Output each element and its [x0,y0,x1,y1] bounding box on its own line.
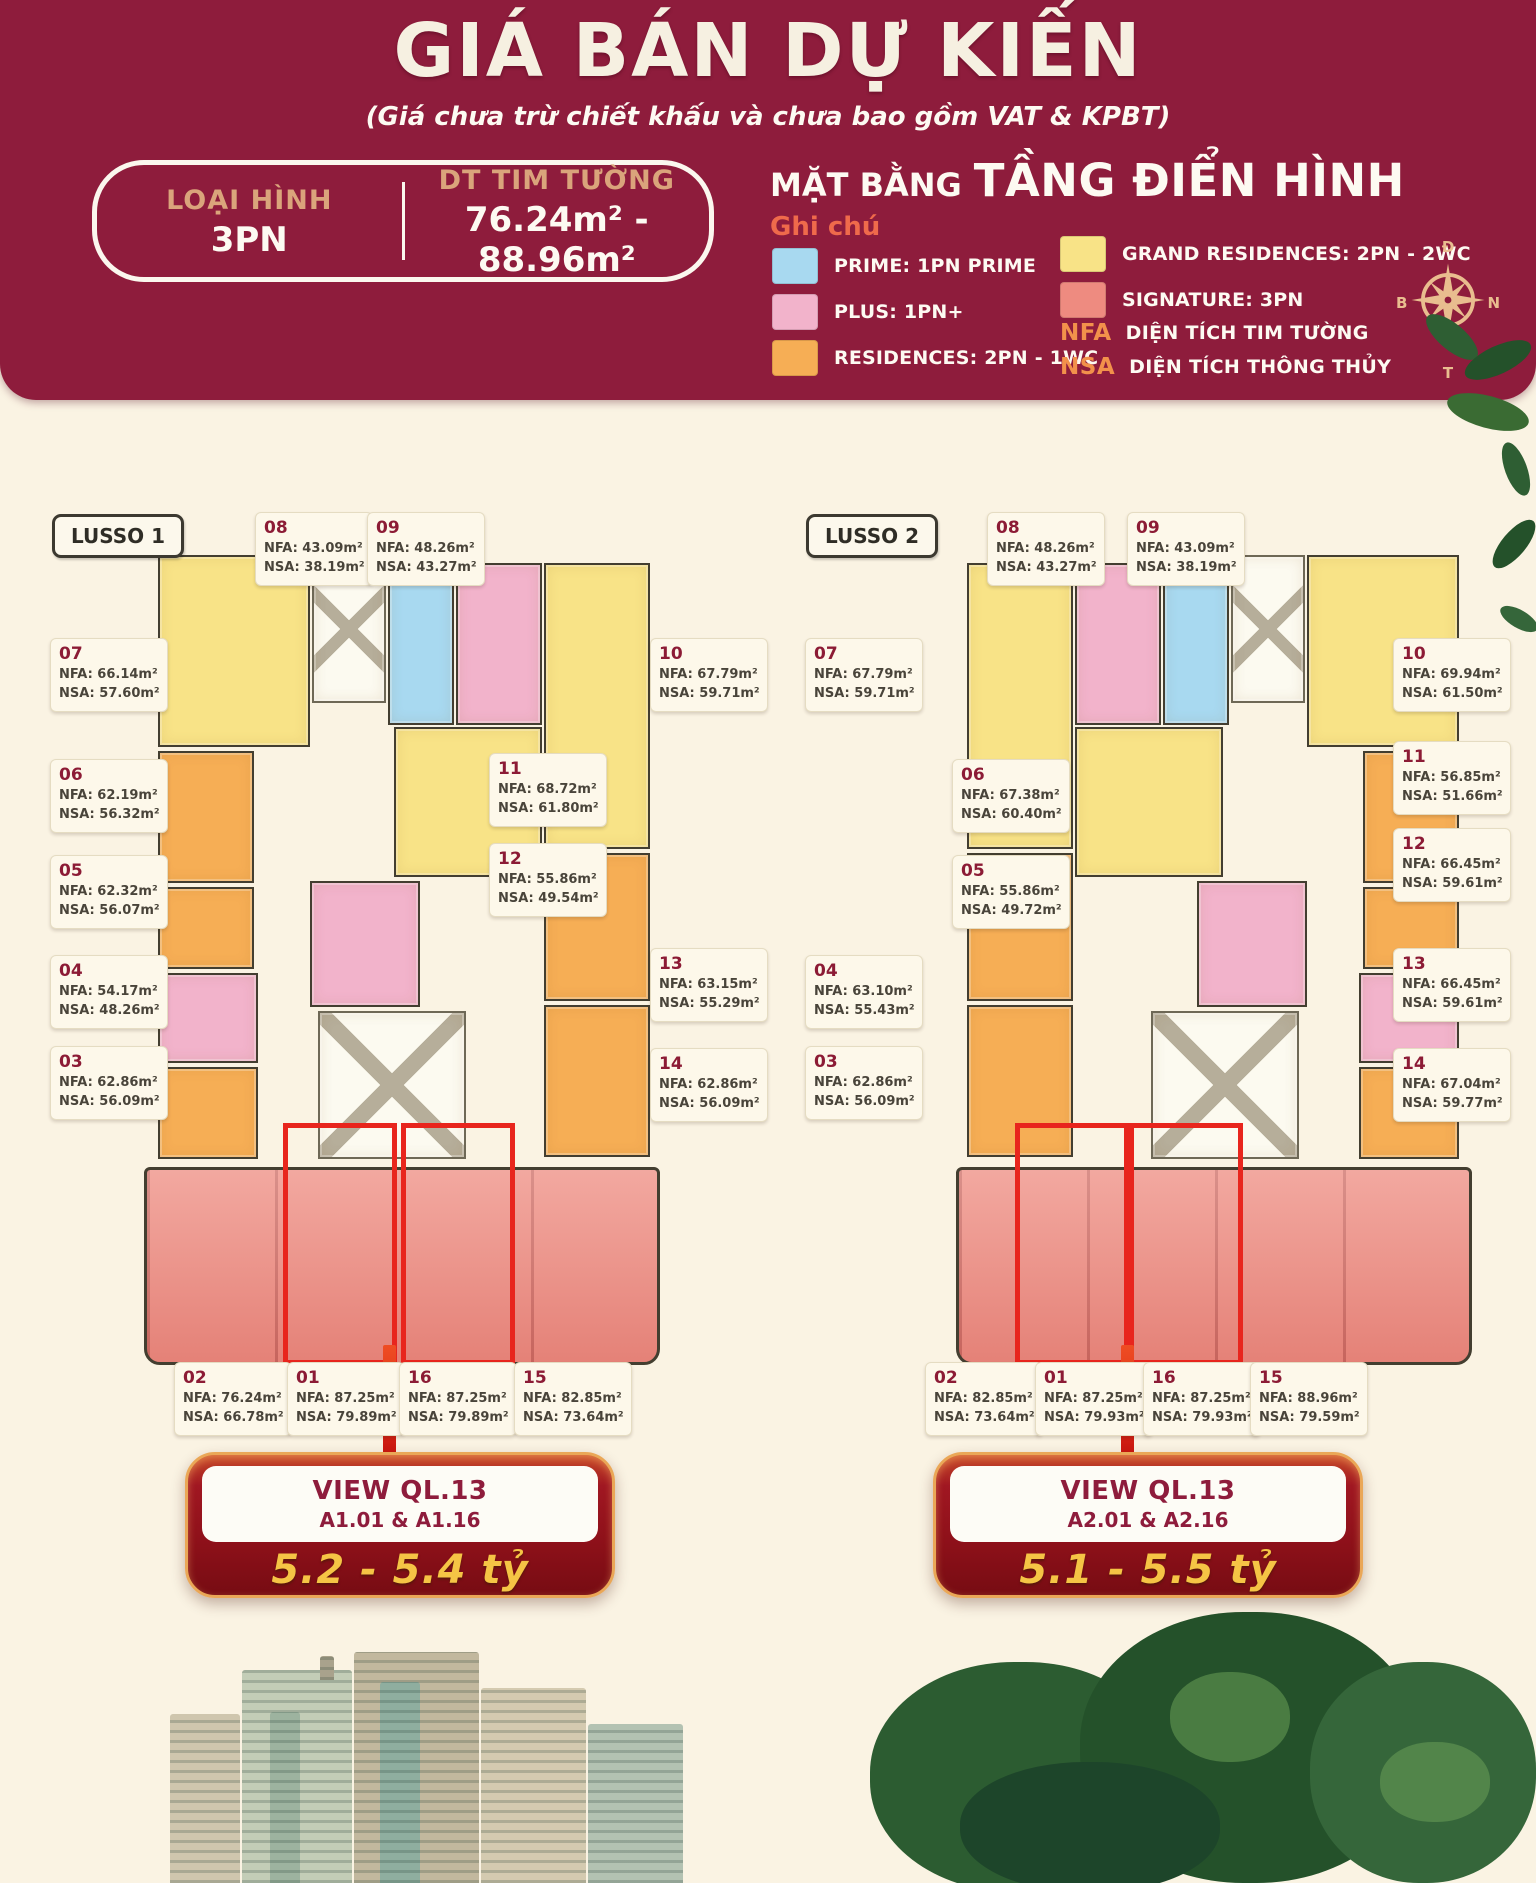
legend-label: RESIDENCES: 2PN - 1WC [834,347,1098,369]
building-tower [170,1714,240,1883]
tree-photo [840,1612,1536,1883]
highlight-box-unit [1129,1123,1243,1365]
unit-nsa: NSA: 60.40m² [961,806,1061,825]
callout-units-label: A2.01 & A2.16 [1067,1508,1228,1532]
unit-number: 12 [498,849,598,869]
unit-nsa: NSA: 73.64m² [934,1409,1034,1428]
unit-nfa: NFA: 66.14m² [59,666,159,685]
unit-nsa: NSA: 56.32m² [59,806,159,825]
compass-letter-top: Đ [1442,238,1455,256]
unit-number: 06 [961,765,1061,785]
unit-nsa: NSA: 43.27m² [996,559,1096,578]
area-column: DT TIM TƯỜNG 76.24m² - 88.96m² [405,163,710,280]
unit-nsa: NSA: 55.29m² [659,995,759,1014]
legend-swatch-grand [1060,236,1106,272]
plan-zone-plus [1197,881,1307,1007]
nfa-abbreviation-row: NFA DIỆN TÍCH TIM TƯỜNG [1060,320,1369,346]
unit-nfa: NFA: 87.25m² [296,1390,396,1409]
unit-nfa: NFA: 88.96m² [1259,1390,1359,1409]
unit-nfa: NFA: 54.17m² [59,983,159,1002]
unit-nfa: NFA: 48.26m² [376,540,476,559]
unit-nsa: NSA: 57.60m² [59,685,159,704]
unit-card: 02NFA: 76.24m²NSA: 66.78m² [174,1362,292,1436]
unit-nfa: NFA: 82.85m² [934,1390,1034,1409]
callout-units-label: A1.01 & A1.16 [319,1508,480,1532]
unit-card: 04NFA: 63.10m²NSA: 55.43m² [805,955,923,1029]
unit-type-info-box: LOẠI HÌNH 3PN DT TIM TƯỜNG 76.24m² - 88.… [92,160,714,282]
unit-nsa: NSA: 48.26m² [59,1002,159,1021]
unit-card: 11NFA: 56.85m²NSA: 51.66m² [1393,741,1511,815]
unit-nfa: NFA: 62.19m² [59,787,159,806]
building-render-photo [170,1652,730,1883]
unit-card: 09NFA: 43.09m²NSA: 38.19m² [1127,512,1245,586]
nsa-key: NSA [1060,354,1115,380]
tree-foliage-highlight [1170,1672,1290,1762]
leaf [1496,439,1536,499]
unit-number: 07 [59,644,159,664]
poster: GIÁ BÁN DỰ KIẾN (Giá chưa trừ chiết khấu… [0,0,1536,1883]
unit-nfa: NFA: 62.86m² [814,1074,914,1093]
unit-nfa: NFA: 67.38m² [961,787,1061,806]
unit-nsa: NSA: 73.64m² [523,1409,623,1428]
unit-number: 15 [1259,1368,1359,1388]
plan-zone-grand [1075,727,1223,877]
unit-nsa: NSA: 56.07m² [59,902,159,921]
highlight-box-unit [401,1123,515,1365]
unit-number: 16 [408,1368,508,1388]
compass-letter-left: B [1396,294,1407,312]
floor-plan-lusso-2 [962,555,1467,1367]
unit-card: 05NFA: 62.32m²NSA: 56.07m² [50,855,168,929]
callout-view-label: VIEW QL.13 [312,1476,487,1506]
plan-zone-plus [456,563,542,725]
unit-nfa: NFA: 66.45m² [1402,976,1502,995]
legend-label: SIGNATURE: 3PN [1122,289,1304,311]
unit-card: 06NFA: 67.38m²NSA: 60.40m² [952,759,1070,833]
legend-swatch-prime [772,248,818,284]
unit-card: 01NFA: 87.25m²NSA: 79.89m² [287,1362,405,1436]
unit-nsa: NSA: 49.72m² [961,902,1061,921]
unit-nfa: NFA: 66.45m² [1402,856,1502,875]
plan-zone-plus [1075,563,1161,725]
foliage-top-right [1390,318,1536,668]
legend-label: PLUS: 1PN+ [834,301,964,323]
building-glass [270,1712,300,1883]
unit-card: 16NFA: 87.25m²NSA: 79.93m² [1143,1362,1261,1436]
unit-nsa: NSA: 79.89m² [408,1409,508,1428]
unit-card: 05NFA: 55.86m²NSA: 49.72m² [952,855,1070,929]
unit-number: 11 [1402,747,1502,767]
unit-nsa: NSA: 38.19m² [264,559,364,578]
unit-nfa: NFA: 43.09m² [1136,540,1236,559]
unit-number: 03 [59,1052,159,1072]
type-value: 3PN [97,220,402,260]
legend-swatch-residences [772,340,818,376]
unit-number: 01 [296,1368,396,1388]
unit-nfa: NFA: 82.85m² [523,1390,623,1409]
legend-label: PRIME: 1PN PRIME [834,255,1036,277]
poster-title: GIÁ BÁN DỰ KIẾN [0,8,1536,94]
tower-label-lusso-2: LUSSO 2 [806,514,938,558]
unit-nsa: NSA: 79.89m² [296,1409,396,1428]
unit-nfa: NFA: 67.04m² [1402,1076,1502,1095]
legend-title: Ghi chú [770,212,880,242]
tree-foliage-highlight [1380,1742,1490,1822]
plan-zone-residences [158,887,254,969]
unit-number: 08 [996,518,1096,538]
unit-card: 14NFA: 62.86m²NSA: 56.09m² [650,1048,768,1122]
unit-number: 05 [961,861,1061,881]
unit-nsa: NSA: 56.09m² [59,1093,159,1112]
highlight-box-unit [1015,1123,1129,1365]
unit-card: 07NFA: 66.14m²NSA: 57.60m² [50,638,168,712]
legend-swatch-plus [772,294,818,330]
type-label: LOẠI HÌNH [97,185,402,216]
unit-card: 07NFA: 67.79m²NSA: 59.71m² [805,638,923,712]
callout-view-box: VIEW QL.13 A1.01 & A1.16 [202,1466,598,1542]
price-callout-lusso-2: VIEW QL.13 A2.01 & A2.16 5.1 - 5.5 tỷ [933,1452,1363,1598]
legend-swatch-signature [1060,282,1106,318]
unit-number: 16 [1152,1368,1252,1388]
unit-card: 14NFA: 67.04m²NSA: 59.77m² [1393,1048,1511,1122]
nfa-key: NFA [1060,320,1112,346]
nsa-label: DIỆN TÍCH THÔNG THỦY [1129,356,1391,378]
compass-letter-right: N [1487,294,1500,312]
unit-nsa: NSA: 49.54m² [498,890,598,909]
unit-number: 08 [264,518,364,538]
unit-card: 03NFA: 62.86m²NSA: 56.09m² [50,1046,168,1120]
plan-zone-prime [1163,563,1229,725]
nfa-label: DIỆN TÍCH TIM TƯỜNG [1126,322,1369,344]
unit-nsa: NSA: 59.71m² [659,685,759,704]
unit-number: 02 [934,1368,1034,1388]
building-tower [588,1724,683,1883]
plan-heading-main: TẦNG ĐIỂN HÌNH [974,154,1405,207]
unit-number: 07 [814,644,914,664]
legend-item: PLUS: 1PN+ [772,294,1098,330]
unit-number: 01 [1044,1368,1144,1388]
unit-nfa: NFA: 68.72m² [498,781,598,800]
unit-card: 15NFA: 88.96m²NSA: 79.59m² [1250,1362,1368,1436]
plan-zone-plus [310,881,420,1007]
plan-zone-residences [158,751,254,883]
building-glass [380,1682,420,1883]
unit-nsa: NSA: 43.27m² [376,559,476,578]
callout-price: 5.1 - 5.5 tỷ [936,1545,1360,1595]
unit-nsa: NSA: 59.61m² [1402,995,1502,1014]
plan-heading-prefix: MẶT BẰNG [770,166,962,204]
unit-number: 04 [59,961,159,981]
unit-nsa: NSA: 59.77m² [1402,1095,1502,1114]
unit-nfa: NFA: 43.09m² [264,540,364,559]
unit-nfa: NFA: 67.79m² [659,666,759,685]
callout-view-box: VIEW QL.13 A2.01 & A2.16 [950,1466,1346,1542]
unit-number: 03 [814,1052,914,1072]
unit-number: 04 [814,961,914,981]
unit-nfa: NFA: 87.25m² [1152,1390,1252,1409]
plan-zone-residences [544,1005,650,1157]
legend-item: PRIME: 1PN PRIME [772,248,1098,284]
unit-card: 09NFA: 48.26m²NSA: 43.27m² [367,512,485,586]
unit-nfa: NFA: 67.79m² [814,666,914,685]
unit-number: 06 [59,765,159,785]
unit-nsa: NSA: 59.61m² [1402,875,1502,894]
unit-number: 02 [183,1368,283,1388]
unit-number: 05 [59,861,159,881]
unit-nfa: NFA: 48.26m² [996,540,1096,559]
callout-view-label: VIEW QL.13 [1060,1476,1235,1506]
price-callout-lusso-1: VIEW QL.13 A1.01 & A1.16 5.2 - 5.4 tỷ [185,1452,615,1598]
unit-number: 12 [1402,834,1502,854]
unit-nsa: NSA: 61.80m² [498,800,598,819]
unit-number: 13 [1402,954,1502,974]
unit-nfa: NFA: 87.25m² [408,1390,508,1409]
unit-card: 12NFA: 66.45m²NSA: 59.61m² [1393,828,1511,902]
unit-nfa: NFA: 62.86m² [659,1076,759,1095]
nsa-abbreviation-row: NSA DIỆN TÍCH THÔNG THỦY [1060,354,1391,380]
unit-nfa: NFA: 63.10m² [814,983,914,1002]
plan-zone-prime [388,563,454,725]
unit-nfa: NFA: 62.86m² [59,1074,159,1093]
unit-card: 03NFA: 62.86m²NSA: 56.09m² [805,1046,923,1120]
unit-number: 10 [659,644,759,664]
unit-nsa: NSA: 55.43m² [814,1002,914,1021]
unit-nfa: NFA: 55.86m² [961,883,1061,902]
unit-nfa: NFA: 76.24m² [183,1390,283,1409]
unit-card: 08NFA: 48.26m²NSA: 43.27m² [987,512,1105,586]
leaf [1496,601,1536,638]
unit-nfa: NFA: 55.86m² [498,871,598,890]
floor-plan-lusso-1 [150,555,655,1367]
unit-card: 01NFA: 87.25m²NSA: 79.93m² [1035,1362,1153,1436]
unit-number: 11 [498,759,598,779]
unit-card: 16NFA: 87.25m²NSA: 79.89m² [399,1362,517,1436]
unit-card: 13NFA: 66.45m²NSA: 59.61m² [1393,948,1511,1022]
unit-nsa: NSA: 79.59m² [1259,1409,1359,1428]
unit-card: 08NFA: 43.09m²NSA: 38.19m² [255,512,373,586]
area-value: 76.24m² - 88.96m² [405,200,710,280]
legend-item: RESIDENCES: 2PN - 1WC [772,340,1098,376]
unit-nfa: NFA: 56.85m² [1402,769,1502,788]
unit-nsa: NSA: 61.50m² [1402,685,1502,704]
unit-nsa: NSA: 56.09m² [659,1095,759,1114]
unit-card: 06NFA: 62.19m²NSA: 56.32m² [50,759,168,833]
leaf [1443,386,1532,439]
type-column: LOẠI HÌNH 3PN [97,183,402,260]
unit-number: 09 [376,518,476,538]
unit-card: 15NFA: 82.85m²NSA: 73.64m² [514,1362,632,1436]
unit-nsa: NSA: 51.66m² [1402,788,1502,807]
callout-price: 5.2 - 5.4 tỷ [188,1545,612,1595]
unit-card: 12NFA: 55.86m²NSA: 49.54m² [489,843,607,917]
legend-column-left: PRIME: 1PN PRIMEPLUS: 1PN+RESIDENCES: 2P… [772,248,1098,386]
unit-nsa: NSA: 59.71m² [814,685,914,704]
unit-nsa: NSA: 79.93m² [1044,1409,1144,1428]
plan-zone-plus [158,973,258,1063]
plan-heading: MẶT BẰNGTẦNG ĐIỂN HÌNH [770,154,1405,207]
unit-nsa: NSA: 79.93m² [1152,1409,1252,1428]
area-label: DT TIM TƯỜNG [405,165,710,196]
plan-zone-residences [158,1067,258,1159]
unit-nfa: NFA: 87.25m² [1044,1390,1144,1409]
tree-foliage [960,1762,1220,1883]
unit-nfa: NFA: 63.15m² [659,976,759,995]
unit-nfa: NFA: 62.32m² [59,883,159,902]
highlight-box-unit [283,1123,397,1365]
unit-card: 04NFA: 54.17m²NSA: 48.26m² [50,955,168,1029]
building-tower [481,1688,586,1883]
unit-number: 15 [523,1368,623,1388]
unit-number: 14 [1402,1054,1502,1074]
unit-card: 10NFA: 67.79m²NSA: 59.71m² [650,638,768,712]
unit-nsa: NSA: 56.09m² [814,1093,914,1112]
header-banner: GIÁ BÁN DỰ KIẾN (Giá chưa trừ chiết khấu… [0,0,1536,400]
unit-number: 13 [659,954,759,974]
unit-card: 13NFA: 63.15m²NSA: 55.29m² [650,948,768,1022]
unit-nsa: NSA: 66.78m² [183,1409,283,1428]
unit-nsa: NSA: 38.19m² [1136,559,1236,578]
unit-number: 14 [659,1054,759,1074]
building-spire [320,1656,334,1680]
unit-card: 11NFA: 68.72m²NSA: 61.80m² [489,753,607,827]
leaf [1486,513,1536,574]
unit-number: 09 [1136,518,1236,538]
poster-subtitle: (Giá chưa trừ chiết khấu và chưa bao gồm… [0,102,1536,132]
unit-nfa: NFA: 69.94m² [1402,666,1502,685]
tower-label-lusso-1: LUSSO 1 [52,514,184,558]
unit-card: 02NFA: 82.85m²NSA: 73.64m² [925,1362,1043,1436]
